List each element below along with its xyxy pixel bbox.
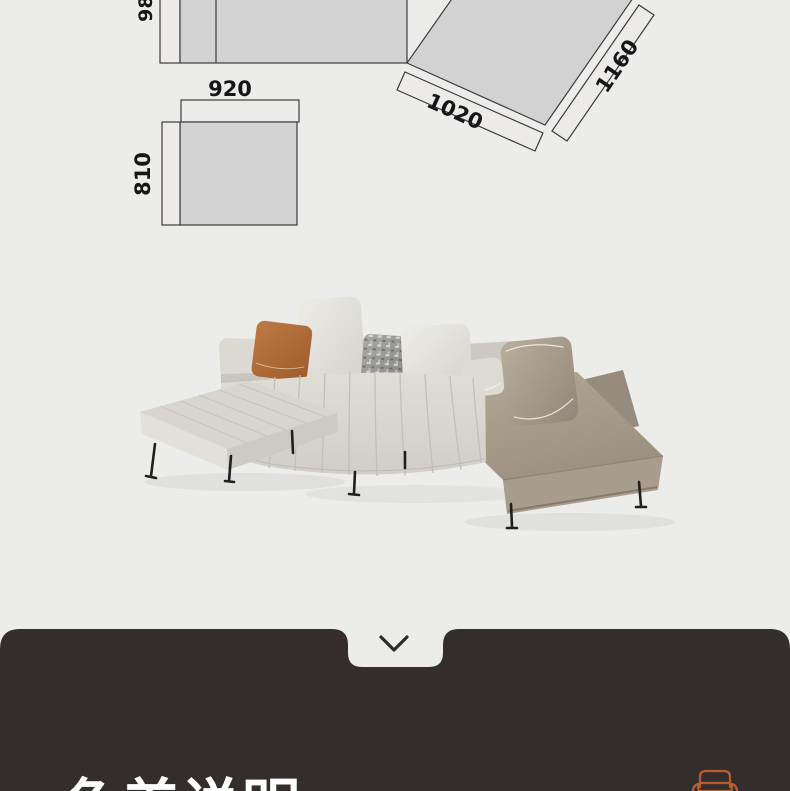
pillow-orange [251,320,313,382]
chevron-down-icon[interactable] [381,637,407,650]
dim-strip-depth-top [160,0,180,63]
dim-label-width: 920 [208,77,252,101]
bottom-sheet: 色差说明 [0,629,790,791]
product-photo-sofa [115,282,675,542]
dimension-diagram: 980 920 810 1020 1160 [0,0,790,245]
dim-strip-width [181,100,299,122]
product-detail-page: 980 920 810 1020 1160 [0,0,790,791]
sofa-icon [692,765,738,791]
floorplan-main-section [180,0,407,63]
dim-label-depth: 810 [131,152,155,196]
dim-strip-depth [162,122,180,225]
dim-label-depth-top: 980 [135,0,157,22]
section-title: 色差说明 [62,759,302,791]
floorplan-seat-module [180,122,297,225]
pillow-taupe [500,335,579,427]
